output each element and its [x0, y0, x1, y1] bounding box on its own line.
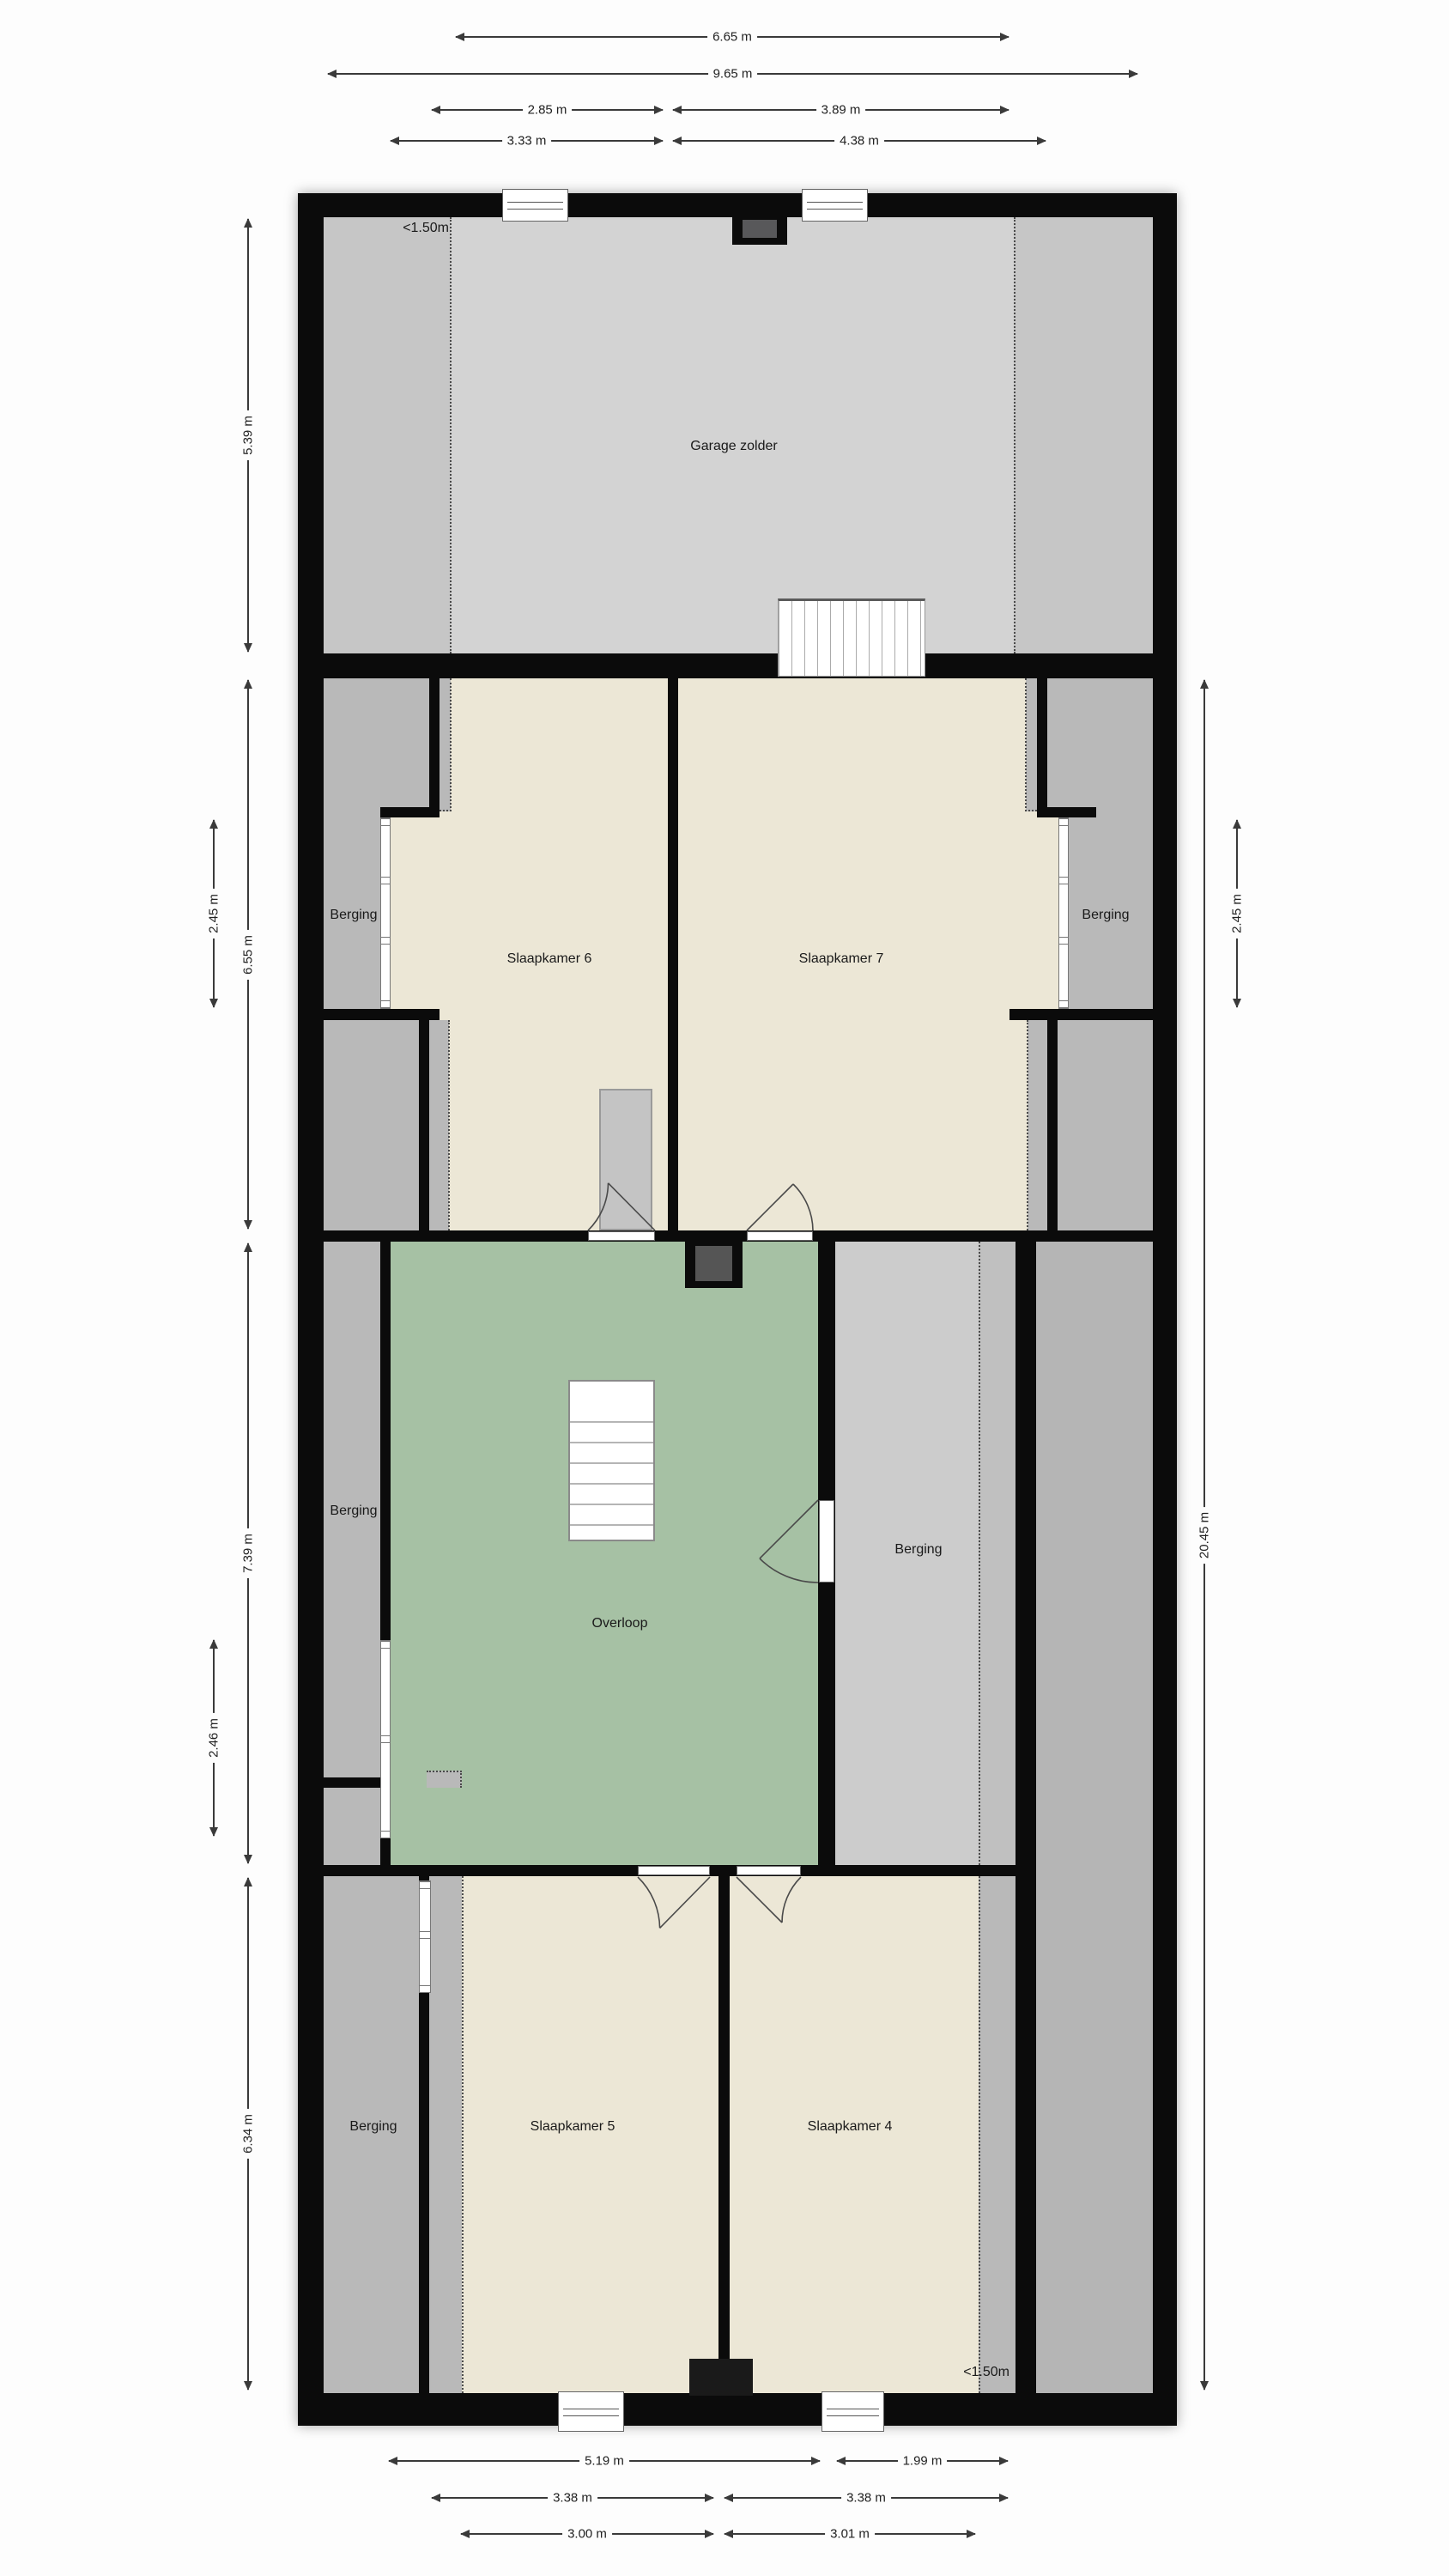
door-arc-slaapkamer7	[747, 1184, 813, 1230]
room-label-overloop: Overloop	[592, 1616, 648, 1631]
dim-bottom-3-38-b: 3.38 m	[724, 2497, 1008, 2499]
room-label-berging-bottom: Berging	[349, 2119, 397, 2135]
room-label-berging-bed-right: Berging	[1082, 908, 1129, 923]
dim-label: 2.45 m	[207, 889, 221, 939]
dim-label: 4.38 m	[834, 134, 884, 149]
room-label-berging-mid-right: Berging	[894, 1542, 942, 1558]
dim-label: 3.38 m	[841, 2491, 891, 2506]
headroom-label-bottom: <1.50m	[963, 2365, 1009, 2380]
dim-label: 2.45 m	[1230, 889, 1245, 939]
door-arc-slaapkamer6	[588, 1183, 655, 1230]
dim-right-20-45: 20.45 m	[1203, 680, 1205, 2390]
dim-left-7-39: 7.39 m	[247, 1243, 249, 1863]
dim-label: 3.01 m	[825, 2527, 875, 2542]
dim-label: 7.39 m	[241, 1528, 256, 1578]
dim-label: 2.85 m	[523, 103, 573, 118]
dim-label: 6.65 m	[707, 30, 757, 45]
dim-bottom-3-01: 3.01 m	[724, 2533, 975, 2535]
dim-left-2-45: 2.45 m	[213, 820, 215, 1007]
room-label-garage-zolder: Garage zolder	[690, 439, 777, 454]
room-label-slaapkamer5: Slaapkamer 5	[530, 2119, 615, 2135]
dim-label: 3.38 m	[548, 2491, 597, 2506]
dim-label: 3.89 m	[816, 103, 866, 118]
door-arc-slaapkamer5	[638, 1877, 710, 1928]
door-arc-berging-mid-right	[760, 1500, 818, 1583]
dim-label: 3.33 m	[502, 134, 552, 149]
dim-label: 9.65 m	[708, 67, 758, 82]
dim-bottom-3-38-a: 3.38 m	[432, 2497, 713, 2499]
dim-label: 2.46 m	[207, 1713, 221, 1763]
dim-label: 20.45 m	[1197, 1506, 1212, 1563]
dim-top-3-33: 3.33 m	[391, 140, 663, 142]
dim-label: 1.99 m	[898, 2454, 948, 2469]
dim-left-2-46: 2.46 m	[213, 1640, 215, 1836]
room-label-berging-bed-left: Berging	[330, 908, 377, 923]
room-label-slaapkamer4: Slaapkamer 4	[808, 2119, 893, 2135]
dim-top-4-38: 4.38 m	[673, 140, 1046, 142]
dim-top-6-65: 6.65 m	[456, 36, 1009, 38]
dim-bottom-3-00: 3.00 m	[461, 2533, 713, 2535]
room-label-slaapkamer7: Slaapkamer 7	[799, 951, 884, 967]
dim-left-6-34: 6.34 m	[247, 1878, 249, 2390]
dim-top-9-65: 9.65 m	[328, 73, 1137, 75]
dim-top-3-89: 3.89 m	[673, 109, 1009, 111]
dim-left-6-55: 6.55 m	[247, 680, 249, 1229]
headroom-label-top: <1.50m	[403, 221, 449, 236]
floor-plan-canvas: Garage zolder Slaapkamer 6 Slaapkamer 7 …	[0, 0, 1449, 2576]
door-swing-arcs	[0, 0, 1449, 2576]
room-label-slaapkamer6: Slaapkamer 6	[507, 951, 592, 967]
dim-label: 3.00 m	[562, 2527, 612, 2542]
dim-label: 6.55 m	[241, 930, 256, 980]
dim-right-2-45: 2.45 m	[1236, 820, 1238, 1007]
room-label-berging-mid-left: Berging	[330, 1504, 377, 1519]
dim-left-5-39: 5.39 m	[247, 219, 249, 652]
dim-label: 5.19 m	[579, 2454, 629, 2469]
dim-label: 5.39 m	[241, 410, 256, 460]
dim-top-2-85: 2.85 m	[432, 109, 663, 111]
dim-bottom-1-99: 1.99 m	[837, 2460, 1008, 2462]
door-arc-slaapkamer4	[737, 1877, 801, 1923]
dim-label: 6.34 m	[241, 2109, 256, 2159]
dim-bottom-5-19: 5.19 m	[389, 2460, 820, 2462]
